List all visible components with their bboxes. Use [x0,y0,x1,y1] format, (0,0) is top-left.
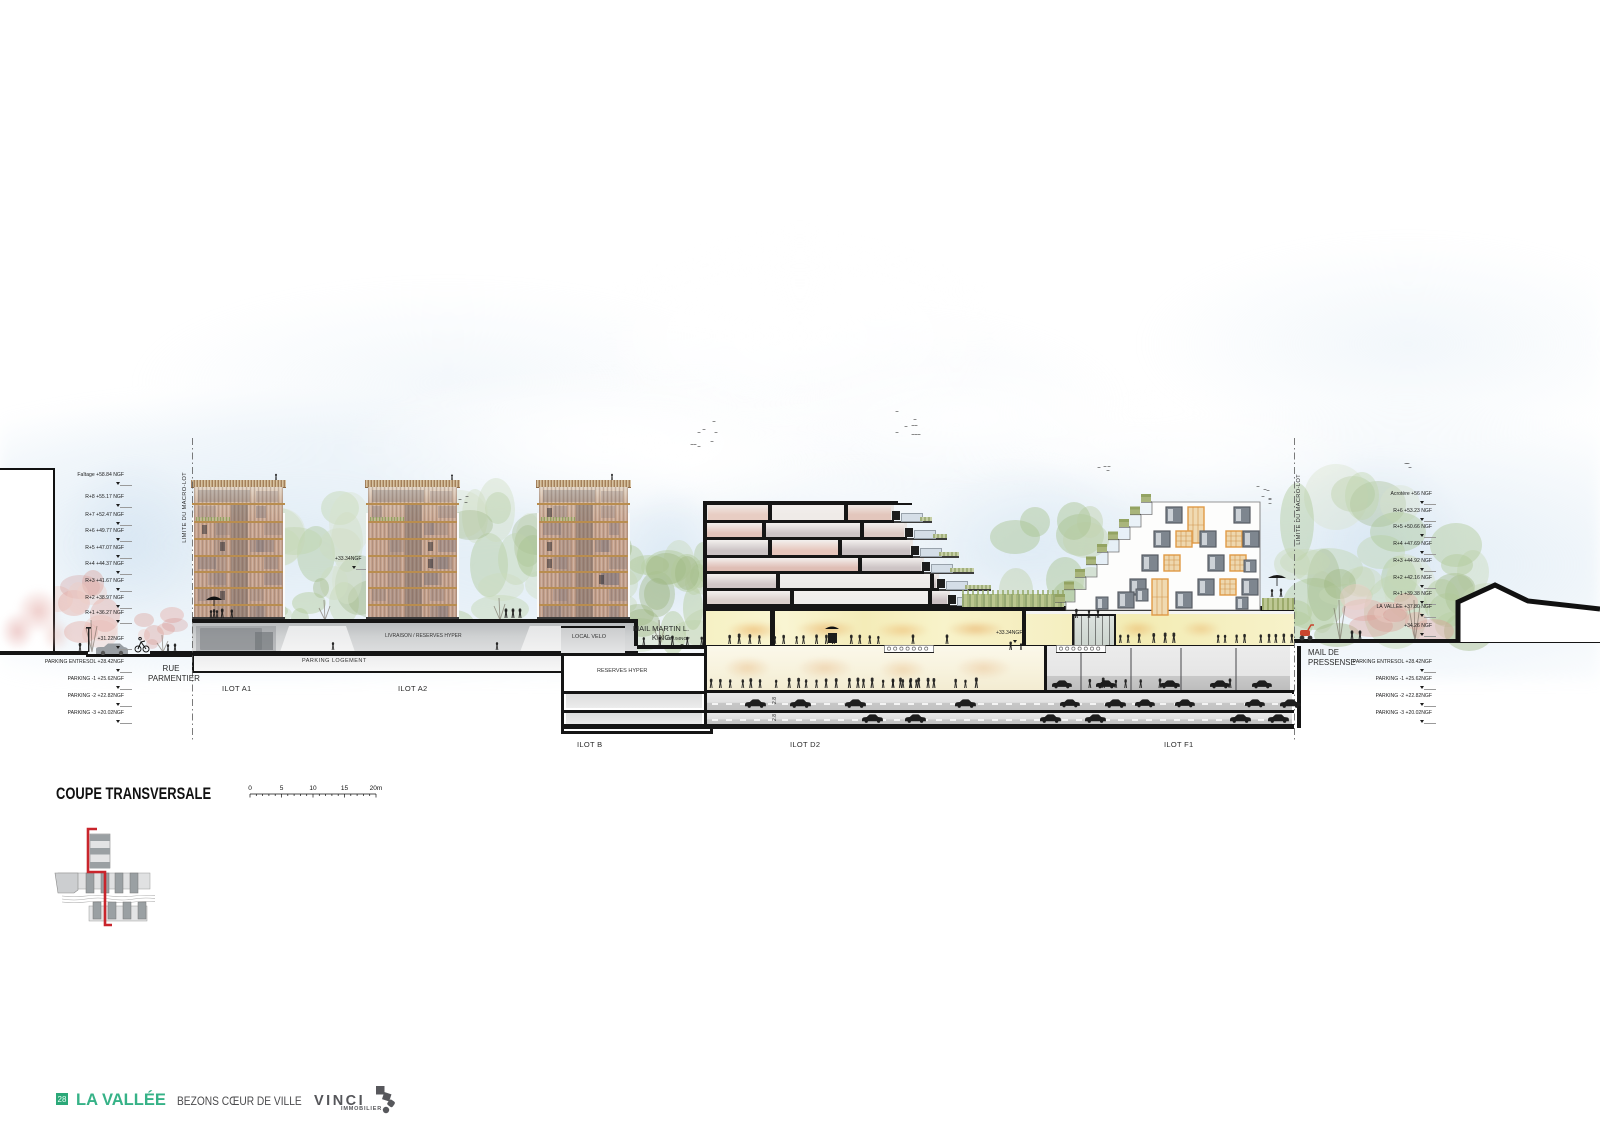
svg-text:20m: 20m [370,785,383,792]
svg-text:5: 5 [280,785,284,792]
svg-text:10: 10 [309,785,317,792]
svg-text:15: 15 [341,785,349,792]
svg-text:0: 0 [248,785,252,792]
